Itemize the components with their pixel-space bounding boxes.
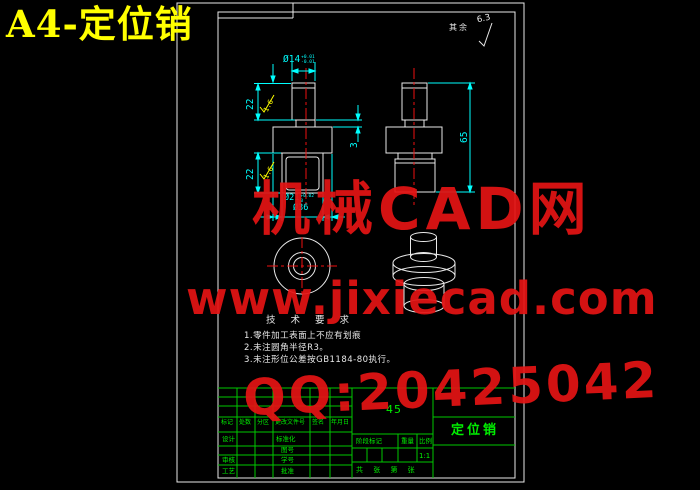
dim-stem-length: 22 xyxy=(246,99,256,110)
tb-label-stage: 阶段标记 xyxy=(356,438,382,445)
tb-part-name: 定位销 xyxy=(451,424,499,437)
dim-stem-tol-lower: -0.01 xyxy=(301,60,315,65)
tb-label-process: 工艺 xyxy=(222,468,235,475)
tb-label-standardization: 标准化 xyxy=(276,436,296,443)
tb-label-scale: 比例 xyxy=(419,438,432,445)
tech-requirement-2: 2.未注圆角半径R3。 xyxy=(244,344,328,353)
watermark-url: www.jixiecad.com xyxy=(186,272,658,325)
dim-stem-diameter: Ø14+0.01-0.01 xyxy=(283,55,315,65)
dim-neck-height: 3 xyxy=(350,142,360,148)
tech-requirement-1: 1.零件加工表面上不应有划痕 xyxy=(244,332,361,341)
tb-label-check: 审核 xyxy=(222,457,235,464)
tb-label-drawing-no: 图号 xyxy=(281,447,294,454)
page-title: A4-定位销 xyxy=(6,6,193,43)
surface-note-label: 其余 xyxy=(449,24,469,32)
cad-drawing-screenshot: Ø14+0.01-0.01 22 22 3 65 Ø21+0.020 Ø36 1… xyxy=(0,0,700,490)
tb-header-mark: 标记 xyxy=(221,420,233,426)
dim-overall-height: 65 xyxy=(460,132,470,143)
tb-label-weight: 重量 xyxy=(401,438,414,445)
tb-sheets: 共 张 第 张 xyxy=(356,467,415,474)
surface-finish-symbol xyxy=(479,23,492,46)
tb-scale-value: 1:1 xyxy=(419,453,430,460)
tb-label-student-no: 学号 xyxy=(281,457,294,464)
watermark-brand: 机械CAD网 xyxy=(252,162,592,246)
tb-label-approve: 批准 xyxy=(281,468,294,475)
tb-label-design: 设计 xyxy=(222,436,235,443)
